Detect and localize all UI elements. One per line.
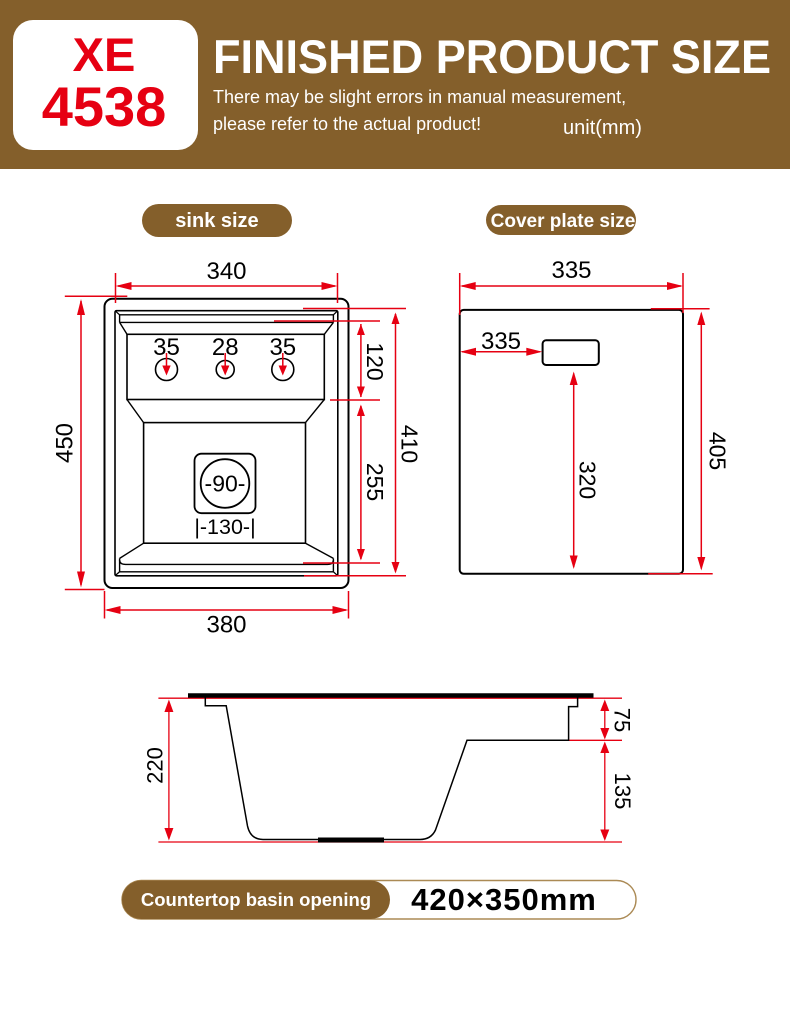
svg-text:120: 120 [362,342,388,380]
svg-text:335: 335 [481,328,521,355]
svg-text:sink size: sink size [175,210,258,232]
svg-text:|-130-|: |-130-| [194,515,255,539]
svg-text:450: 450 [52,423,79,463]
svg-text:405: 405 [705,432,731,470]
svg-text:-90-: -90- [205,471,246,497]
svg-text:Countertop basin opening: Countertop basin opening [141,889,371,910]
svg-text:There may be slight errors in: There may be slight errors in manual mea… [213,87,626,107]
svg-text:4538: 4538 [42,75,167,138]
svg-text:220: 220 [143,747,168,784]
svg-text:380: 380 [206,612,246,639]
svg-text:340: 340 [206,258,246,285]
svg-text:unit(mm): unit(mm) [563,117,642,139]
svg-text:XE: XE [73,28,136,81]
svg-text:335: 335 [551,257,591,284]
svg-text:135: 135 [610,773,635,810]
svg-text:410: 410 [397,425,423,463]
svg-text:255: 255 [362,463,388,501]
svg-text:Cover plate size: Cover plate size [491,211,636,232]
svg-text:FINISHED PRODUCT SIZE: FINISHED PRODUCT SIZE [213,30,771,83]
svg-text:please refer to the actual pro: please refer to the actual product! [213,114,481,134]
svg-text:320: 320 [575,461,601,499]
svg-text:420×350mm: 420×350mm [411,882,597,917]
svg-text:75: 75 [610,708,635,732]
